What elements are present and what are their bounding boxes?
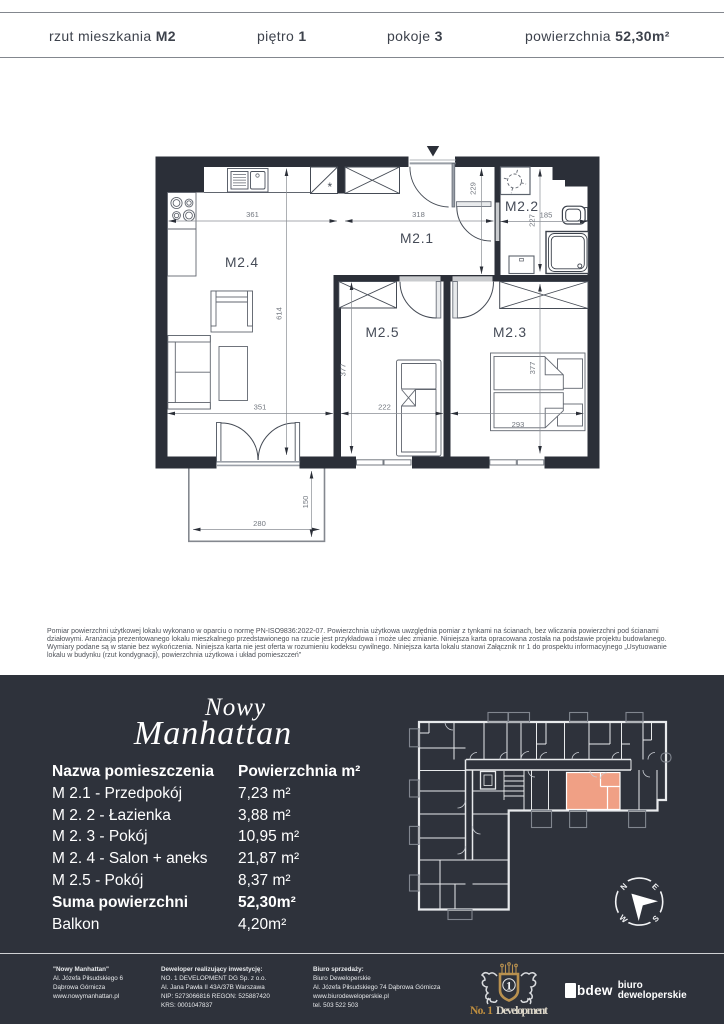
svg-text:M2.1: M2.1 [400,231,434,246]
svg-text:318: 318 [412,210,425,219]
svg-text:M2.4: M2.4 [225,255,259,270]
svg-text:185: 185 [540,211,553,220]
svg-text:150: 150 [301,496,310,509]
svg-text:No. 1: No. 1 [470,1005,493,1017]
svg-text:614: 614 [275,307,284,320]
svg-text:1: 1 [506,978,512,992]
svg-text:361: 361 [246,210,259,219]
svg-text:227: 227 [528,214,537,227]
svg-text:293: 293 [512,420,525,429]
svg-text:351: 351 [254,403,267,412]
svg-text:377: 377 [339,364,348,377]
svg-text:229: 229 [469,182,478,195]
svg-text:280: 280 [253,519,266,528]
svg-text:M2.3: M2.3 [493,325,527,340]
svg-text:*: * [328,180,333,194]
svg-text:M2.5: M2.5 [366,325,400,340]
svg-text:Development: Development [496,1005,548,1017]
svg-text:M2.2: M2.2 [505,199,539,214]
svg-text:222: 222 [378,403,391,412]
svg-text:377: 377 [528,362,537,375]
